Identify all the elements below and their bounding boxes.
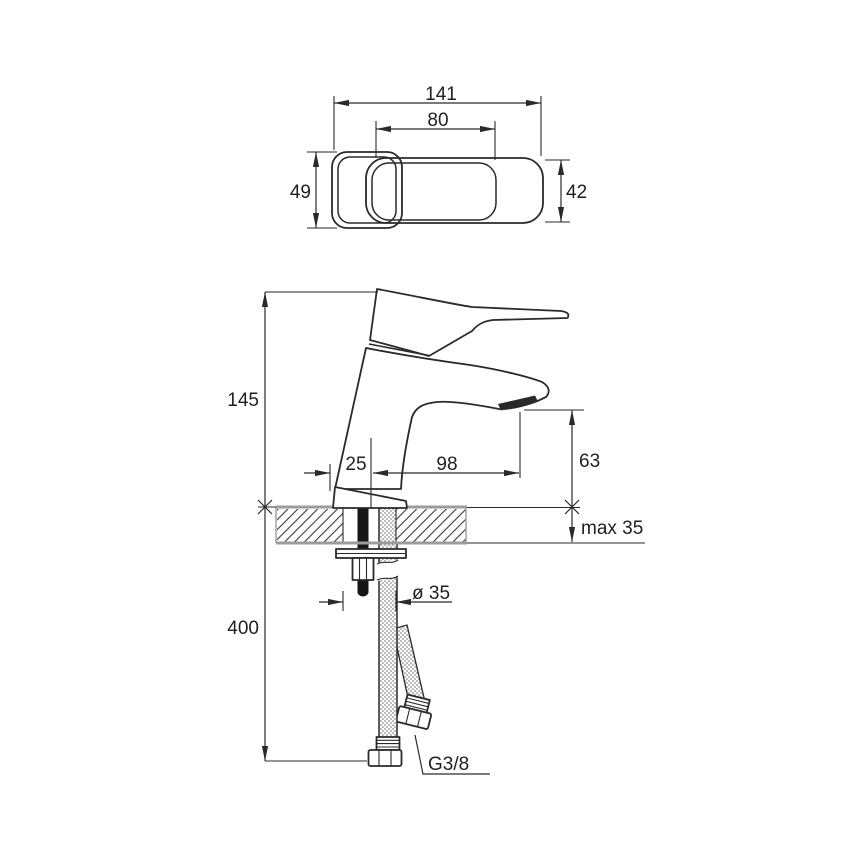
deck-hatch-right: [396, 509, 466, 542]
dim-42-label: 42: [566, 182, 587, 203]
thread-label: G3/8: [428, 754, 469, 775]
dim-145-label: 145: [227, 390, 259, 411]
dim-80-label: 80: [427, 110, 448, 131]
dim-98-label: 98: [436, 454, 457, 475]
dim-63-label: 63: [579, 451, 600, 472]
dim-400-label: 400: [227, 618, 259, 639]
hose-nut-left: [369, 750, 402, 766]
dim-49-label: 49: [290, 182, 311, 203]
mounting-stud-tip: [358, 588, 369, 597]
mounting-nut: [353, 558, 374, 580]
dim-hole-label: ø 35: [412, 583, 450, 604]
dim-25-label: 25: [345, 454, 366, 475]
faucet-dimension-drawing: 141 80 49 42: [0, 0, 868, 868]
dim-max35-label: max 35: [581, 518, 643, 539]
dim-141-label: 141: [425, 84, 457, 105]
technical-drawing-page: 141 80 49 42: [0, 0, 868, 868]
deck-hatch-left: [277, 509, 343, 542]
